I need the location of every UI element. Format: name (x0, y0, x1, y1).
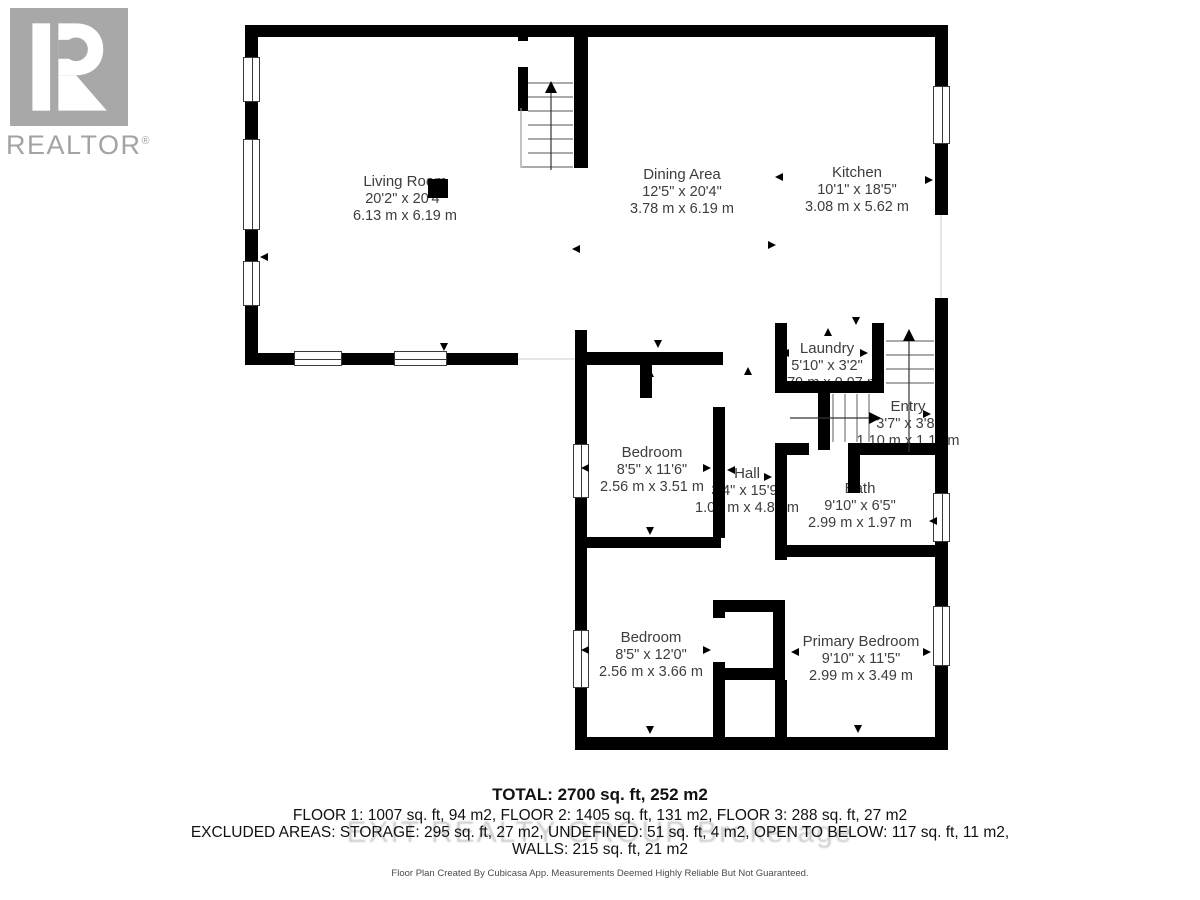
wall-segment (518, 67, 528, 111)
column-marker (428, 179, 448, 198)
window-marker (573, 630, 589, 688)
wall-segment (775, 443, 809, 455)
wall-segment (575, 737, 948, 750)
room-label-kitchen: Kitchen 10'1" x 18'5" 3.08 m x 5.62 m (772, 163, 942, 216)
room-label-bath: Bath 9'10" x 6'5" 2.99 m x 1.97 m (785, 479, 935, 532)
wall-segment (245, 25, 948, 37)
wall-segment (872, 323, 884, 393)
wall-segment (848, 455, 860, 493)
window-marker (243, 261, 260, 306)
floor-areas-text: FLOOR 1: 1007 sq. ft, 94 m2, FLOOR 2: 14… (0, 807, 1200, 825)
room-label-bedroom-lower: Bedroom 8'5" x 12'0" 2.56 m x 3.66 m (576, 628, 726, 681)
staircase-upper (521, 83, 573, 170)
window-marker (243, 139, 260, 230)
wall-segment (848, 443, 948, 455)
total-area-text: TOTAL: 2700 sq. ft, 252 m2 (0, 785, 1200, 805)
wall-segment (935, 298, 948, 495)
wall-segment (342, 353, 394, 365)
wall-segment (775, 680, 787, 740)
wall-segment (773, 610, 785, 670)
wall-segment (935, 143, 948, 215)
window-marker (933, 493, 950, 542)
wall-segment (575, 352, 723, 365)
wall-segment (575, 330, 587, 445)
wall-segment (518, 25, 528, 41)
realtor-logo-icon (10, 8, 128, 131)
wall-segment (713, 407, 725, 538)
wall-segment (245, 25, 258, 57)
wall-segment (447, 353, 518, 365)
window-marker (294, 351, 342, 366)
wall-segment (775, 545, 948, 557)
room-label-dining: Dining Area 12'5" x 20'4" 3.78 m x 6.19 … (597, 165, 767, 218)
floor-plan-page: REALTOR® EXIT REALTY GROUP Brokerage (0, 0, 1200, 900)
wall-segment (575, 497, 587, 631)
wall-segment (640, 365, 652, 398)
window-marker (933, 606, 950, 666)
window-marker (933, 86, 950, 144)
wall-segment (935, 25, 948, 87)
window-marker (394, 351, 447, 366)
room-label-primary-bedroom: Primary Bedroom 9'10" x 11'5" 2.99 m x 3… (771, 632, 951, 685)
window-marker (243, 57, 260, 102)
window-marker (573, 444, 589, 498)
walls-area-text: WALLS: 215 sq. ft, 21 m2 (0, 841, 1200, 859)
wall-segment (580, 537, 721, 548)
wall-segment (574, 25, 588, 168)
wall-segment (245, 230, 258, 261)
wall-segment (775, 381, 872, 393)
room-label-living: Living Room 20'2" x 20'4" 6.13 m x 6.19 … (305, 172, 505, 225)
excluded-areas-text: EXCLUDED AREAS: STORAGE: 295 sq. ft, 27 … (0, 824, 1200, 842)
wall-segment (245, 353, 295, 365)
wall-segment (818, 393, 830, 450)
realtor-logo-text: REALTOR® (6, 130, 151, 161)
disclaimer-text: Floor Plan Created By Cubicasa App. Meas… (0, 868, 1200, 879)
wall-segment (245, 102, 258, 139)
